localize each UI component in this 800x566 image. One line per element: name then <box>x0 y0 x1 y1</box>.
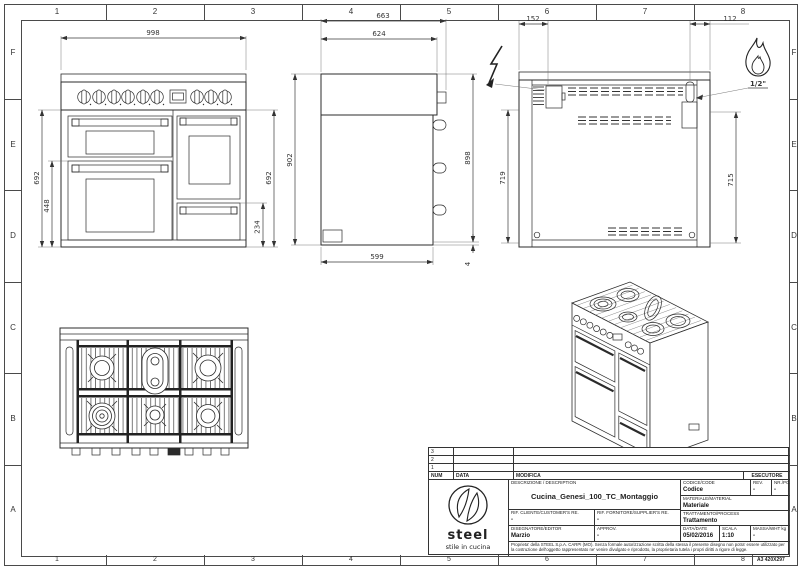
code-cell: CODICE/CODE Codice <box>681 480 751 496</box>
rev-header-num: NUM <box>429 472 454 480</box>
dim-front-width: 998 <box>146 29 159 37</box>
side-rail-right <box>235 347 242 435</box>
row-label: F <box>7 48 19 58</box>
lightning-icon <box>486 46 545 90</box>
col-label: 7 <box>635 556 655 563</box>
disclaimer-cell: Proprieta' della STEEL S.p.A. CARPI (MO)… <box>509 542 790 556</box>
rev-row-2-date <box>454 456 514 464</box>
dim-side-top-depth: 624 <box>372 30 386 38</box>
dim-front-door-height: 448 <box>43 199 51 212</box>
process-cell: TRATTAMENTO/PROCESS Trattamento <box>681 511 790 526</box>
svg-text:steel: steel <box>447 528 488 543</box>
rev-row-3-num: 3 <box>429 448 454 456</box>
row-label: D <box>788 231 800 241</box>
rev-header-date: DATA <box>454 472 514 480</box>
dim-front-left-height: 692 <box>33 171 41 184</box>
dim-side-left-height: 902 <box>286 153 294 166</box>
left-bottom-oven-door <box>68 161 172 240</box>
gas-connection <box>682 82 697 128</box>
vent-slots <box>533 87 683 235</box>
rev-header-mod: MODIFICA <box>514 472 744 480</box>
dim-side-base-depth: 599 <box>370 253 383 261</box>
col-label: 3 <box>243 7 263 16</box>
dim-front-drawer-height: 234 <box>254 220 262 234</box>
col-label: 8 <box>733 556 753 563</box>
electrical-connection-box <box>546 86 565 108</box>
col-label: 6 <box>537 556 557 563</box>
row-label: E <box>788 140 800 150</box>
col-label: 4 <box>341 556 361 563</box>
storage-drawer <box>177 203 240 240</box>
rev-row-1-date <box>454 464 514 472</box>
scale-cell: SCALA 1:10 <box>720 526 751 542</box>
row-label: B <box>7 414 19 424</box>
col-label: 1 <box>47 556 67 563</box>
description-cell: DESCRIZIONE / DESCRIPTION Cucina_Genesi_… <box>509 480 681 510</box>
nr-cell: NR./PC. - <box>772 480 790 496</box>
burner-wok <box>87 401 117 431</box>
control-knobs <box>78 90 233 105</box>
approval-cell: APPROV. - <box>595 526 681 542</box>
customer-ref-cell: RIF. CLIENTE/CUSTOMER'S RE. - <box>509 510 595 526</box>
row-label: B <box>788 414 800 424</box>
logo-cell: steel stile in cucina <box>429 480 509 556</box>
rev-row-3-mod <box>514 448 790 456</box>
gas-size-label: 1/2" <box>750 80 766 88</box>
material-cell: MATERIALE/MATERIAL Materiale <box>681 496 790 511</box>
rev-cell: REV. - <box>751 480 772 496</box>
row-label: D <box>7 231 19 241</box>
front-view: 998 <box>28 24 282 270</box>
rear-view: 152 112 719 715 1/2" <box>483 8 789 260</box>
burner-top-left <box>88 354 116 382</box>
sheet-format-label: A3 420X297 <box>757 557 785 563</box>
drawing-title: Cucina_Genesi_100_TC_Montaggio <box>509 492 680 501</box>
dim-rear-electric-offset: 152 <box>526 15 539 23</box>
side-rail-left <box>66 347 73 435</box>
editor-cell: DISEGNATORE/EDITOR Marzio <box>509 526 595 542</box>
flame-icon <box>746 38 770 76</box>
mass-cell: MASSA/WHT kg - <box>751 526 790 542</box>
col-label: 2 <box>145 556 165 563</box>
knob-row <box>72 448 229 455</box>
rev-row-3-date <box>454 448 514 456</box>
left-top-oven-door <box>68 116 172 157</box>
col-label: 1 <box>47 7 67 16</box>
rev-row-2-num: 2 <box>429 456 454 464</box>
rev-row-2-mod <box>514 456 790 464</box>
supplier-ref-cell: RIF. FORNITORE/SUPPLIER'S RE. - <box>595 510 681 526</box>
row-label: C <box>788 323 800 333</box>
rev-row-1-mod <box>514 464 790 472</box>
burner-oval-middle <box>142 348 168 394</box>
side-view: 663 624 902 898 4 599 <box>283 2 489 278</box>
dim-rear-gas-offset: 112 <box>723 15 736 23</box>
dim-side-overall-depth: 663 <box>376 12 389 20</box>
burner-top-right <box>193 353 223 383</box>
rev-row-1-num: 1 <box>429 464 454 472</box>
top-view <box>38 298 272 470</box>
col-label: 3 <box>243 556 263 563</box>
dim-front-right-height: 692 <box>265 171 273 184</box>
burner-bottom-middle <box>144 404 166 426</box>
dim-rear-right-height: 715 <box>727 173 735 186</box>
dim-rear-left-height: 719 <box>499 171 507 184</box>
col-label: 2 <box>145 7 165 16</box>
dim-side-base-gap: 4 <box>464 261 472 266</box>
col-label: 5 <box>439 556 459 563</box>
svg-text:stile in cucina: stile in cucina <box>446 543 491 551</box>
row-label: C <box>7 323 19 333</box>
isometric-view <box>553 263 777 467</box>
legal-disclaimer: Proprieta' della STEEL S.p.A. CARPI (MO)… <box>509 542 790 554</box>
steel-logo: steel stile in cucina <box>429 480 507 554</box>
dim-side-right-height: 898 <box>464 151 472 164</box>
row-label: A <box>7 505 19 515</box>
date-cell: DATA/DATE 05/02/2016 <box>681 526 720 542</box>
burner-bottom-right <box>194 402 222 430</box>
row-label: E <box>7 140 19 150</box>
rev-header-executor: ESECUTORE <box>744 472 790 480</box>
title-block: 3 2 1 NUM DATA MODIFICA ESECUTORE steel … <box>428 447 789 555</box>
row-label: F <box>788 48 800 58</box>
drawing-sheet: 1 2 3 4 5 6 7 8 1 2 3 4 5 6 7 8 A3 420X2… <box>0 0 800 566</box>
right-oven-door <box>177 116 240 199</box>
